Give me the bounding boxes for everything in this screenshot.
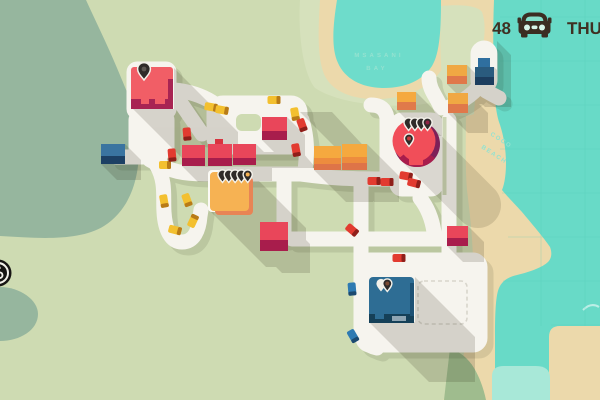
svg-text:THU: THU <box>567 19 600 38</box>
svg-text:48: 48 <box>492 19 511 38</box>
svg-text:MSASANI: MSASANI <box>354 52 403 59</box>
svg-text:BAY: BAY <box>366 65 387 72</box>
